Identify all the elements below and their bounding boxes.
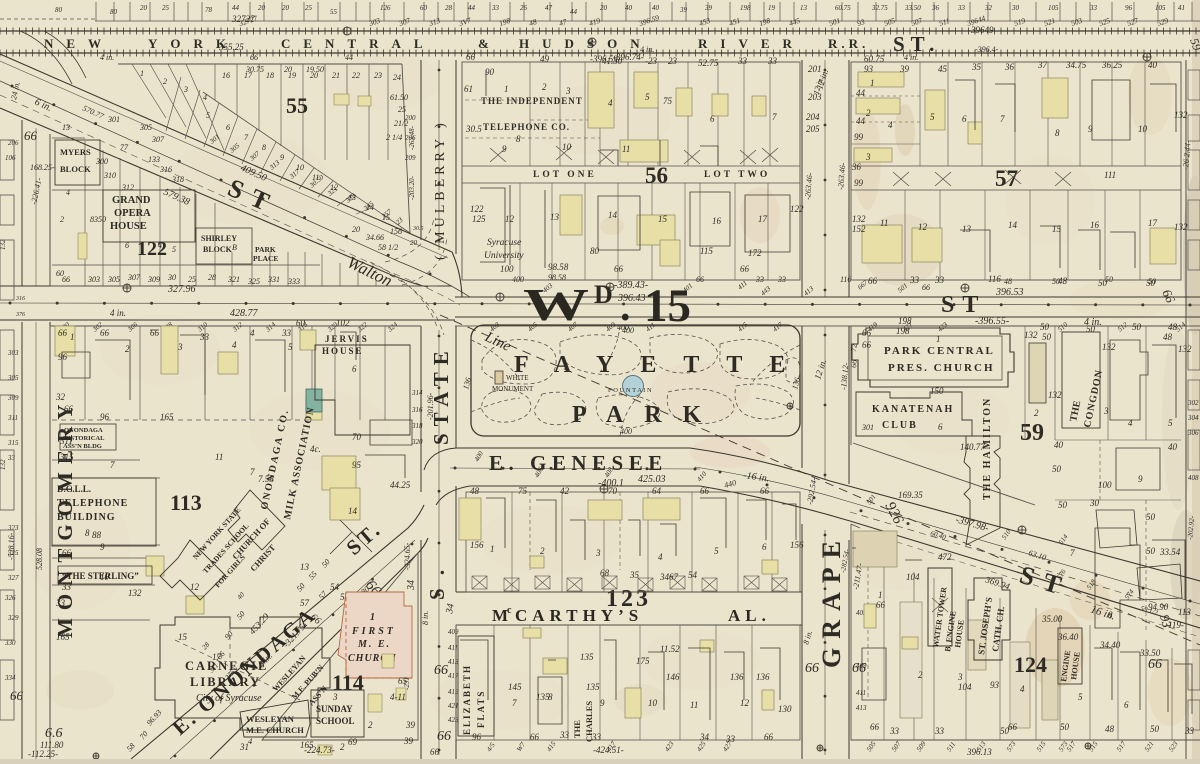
svg-text:59: 59 bbox=[1020, 420, 1044, 446]
svg-text:35: 35 bbox=[971, 62, 982, 72]
svg-text:408: 408 bbox=[1188, 474, 1199, 482]
svg-text:52.75: 52.75 bbox=[698, 58, 719, 68]
svg-text:8 in.: 8 in. bbox=[421, 611, 430, 625]
svg-text:CENTRAL: CENTRAL bbox=[281, 36, 436, 51]
svg-text:WHITE: WHITE bbox=[506, 374, 529, 382]
svg-text:7: 7 bbox=[1070, 548, 1075, 558]
svg-text:126: 126 bbox=[380, 4, 391, 12]
svg-text:6: 6 bbox=[762, 542, 767, 552]
svg-text:20: 20 bbox=[258, 4, 266, 12]
svg-text:36: 36 bbox=[931, 4, 940, 12]
svg-text:LOT TWO: LOT TWO bbox=[704, 170, 770, 180]
svg-text:18: 18 bbox=[266, 71, 274, 80]
svg-text:5: 5 bbox=[206, 111, 210, 120]
svg-text:318: 318 bbox=[411, 422, 423, 430]
svg-text:-396.4-: -396.4- bbox=[975, 45, 999, 54]
svg-text:4c.: 4c. bbox=[310, 444, 321, 454]
svg-text:13: 13 bbox=[300, 562, 310, 572]
svg-text:4: 4 bbox=[66, 188, 70, 197]
svg-text:66: 66 bbox=[530, 732, 540, 742]
svg-text:5: 5 bbox=[1168, 418, 1173, 428]
svg-text:13: 13 bbox=[800, 4, 808, 12]
svg-text:333: 333 bbox=[287, 277, 300, 286]
svg-text:30: 30 bbox=[1011, 4, 1020, 12]
svg-text:3: 3 bbox=[332, 692, 338, 702]
svg-text:32727: 32727 bbox=[231, 14, 255, 24]
svg-text:80: 80 bbox=[55, 6, 63, 14]
svg-text:61: 61 bbox=[464, 84, 473, 94]
svg-text:11: 11 bbox=[215, 452, 223, 462]
svg-text:312: 312 bbox=[121, 183, 134, 192]
svg-text:60: 60 bbox=[296, 318, 306, 328]
svg-text:4 in.: 4 in. bbox=[904, 53, 918, 62]
svg-text:PRES. CHURCH: PRES. CHURCH bbox=[888, 362, 995, 374]
svg-text:96: 96 bbox=[472, 732, 482, 742]
svg-text:132: 132 bbox=[1102, 342, 1116, 352]
svg-text:4: 4 bbox=[232, 340, 237, 350]
svg-text:3: 3 bbox=[183, 85, 188, 94]
svg-text:-39649: -39649 bbox=[968, 25, 994, 35]
svg-text:135: 135 bbox=[536, 692, 550, 702]
svg-text:39: 39 bbox=[899, 64, 910, 74]
svg-text:1: 1 bbox=[370, 612, 375, 623]
svg-text:FAYETTE: FAYETTE bbox=[514, 352, 812, 378]
svg-text:75: 75 bbox=[663, 96, 673, 106]
svg-text:9: 9 bbox=[600, 698, 605, 708]
svg-text:33: 33 bbox=[909, 275, 920, 285]
svg-text:University: University bbox=[484, 251, 524, 261]
svg-text:36.40: 36.40 bbox=[1057, 632, 1079, 642]
svg-text:B: B bbox=[232, 243, 237, 252]
svg-text:136: 136 bbox=[730, 672, 744, 682]
svg-text:135: 135 bbox=[586, 682, 600, 692]
svg-text:3: 3 bbox=[957, 672, 963, 682]
svg-text:11: 11 bbox=[622, 144, 630, 154]
svg-text:FLATS: FLATS bbox=[476, 690, 486, 728]
svg-text:205: 205 bbox=[806, 124, 820, 134]
svg-text:14: 14 bbox=[608, 210, 618, 220]
svg-text:21: 21 bbox=[332, 71, 340, 80]
svg-text:156: 156 bbox=[470, 540, 484, 550]
svg-text:132: 132 bbox=[1174, 222, 1188, 232]
svg-text:10: 10 bbox=[562, 142, 572, 152]
svg-text:3: 3 bbox=[565, 86, 571, 96]
svg-text:M.E. CHURCH: M.E. CHURCH bbox=[246, 725, 304, 735]
svg-text:11: 11 bbox=[880, 218, 888, 228]
svg-text:66: 66 bbox=[862, 340, 872, 350]
svg-text:20: 20 bbox=[410, 239, 418, 247]
svg-text:4 in.: 4 in. bbox=[100, 53, 114, 62]
svg-text:NEW: NEW bbox=[44, 36, 114, 51]
svg-text:SUNDAY: SUNDAY bbox=[316, 704, 353, 714]
svg-text:35: 35 bbox=[629, 570, 640, 580]
svg-text:41: 41 bbox=[1178, 4, 1185, 12]
svg-text:4: 4 bbox=[608, 98, 613, 108]
svg-text:57: 57 bbox=[300, 598, 310, 608]
svg-text:411: 411 bbox=[448, 644, 458, 652]
svg-text:75: 75 bbox=[518, 486, 528, 496]
svg-text:318: 318 bbox=[171, 175, 184, 184]
svg-text:10: 10 bbox=[1138, 124, 1148, 134]
svg-text:100: 100 bbox=[1098, 480, 1112, 490]
svg-text:8: 8 bbox=[1055, 128, 1060, 138]
svg-text:42: 42 bbox=[560, 486, 570, 496]
svg-text:5: 5 bbox=[930, 112, 935, 122]
svg-text:9: 9 bbox=[280, 153, 284, 162]
svg-text:301: 301 bbox=[861, 423, 874, 432]
svg-text:132: 132 bbox=[1024, 330, 1038, 340]
svg-text:421: 421 bbox=[448, 702, 459, 710]
svg-text:33: 33 bbox=[61, 582, 72, 592]
svg-text:77: 77 bbox=[120, 143, 129, 152]
svg-text:44: 44 bbox=[468, 4, 476, 12]
svg-text:44.25: 44.25 bbox=[390, 480, 411, 490]
svg-text:321: 321 bbox=[227, 275, 240, 284]
svg-text:KANATENAH: KANATENAH bbox=[872, 404, 954, 415]
svg-text:7: 7 bbox=[250, 467, 255, 477]
svg-text:66: 66 bbox=[250, 53, 258, 62]
svg-text:48: 48 bbox=[1168, 322, 1178, 332]
svg-text:33: 33 bbox=[1184, 726, 1195, 736]
svg-text:25: 25 bbox=[188, 275, 196, 284]
svg-text:28: 28 bbox=[445, 4, 453, 12]
svg-text:409: 409 bbox=[448, 628, 459, 636]
svg-text:16: 16 bbox=[712, 216, 722, 226]
svg-text:PARK: PARK bbox=[255, 245, 276, 254]
svg-text:PLACE: PLACE bbox=[253, 254, 278, 263]
svg-text:48: 48 bbox=[1058, 276, 1068, 286]
svg-text:331: 331 bbox=[267, 275, 280, 284]
svg-text:39: 39 bbox=[679, 6, 688, 14]
svg-text:9: 9 bbox=[1138, 474, 1143, 484]
svg-text:54: 54 bbox=[330, 582, 340, 592]
svg-text:48: 48 bbox=[1004, 277, 1012, 286]
svg-text:132: 132 bbox=[128, 588, 142, 598]
svg-text:355.25: 355.25 bbox=[218, 42, 244, 52]
svg-text:47: 47 bbox=[545, 4, 553, 12]
svg-text:310: 310 bbox=[103, 171, 116, 180]
svg-text:168.25-: 168.25- bbox=[30, 163, 55, 172]
svg-text:156: 156 bbox=[390, 227, 402, 236]
svg-text:327: 327 bbox=[7, 574, 19, 582]
svg-text:-112.25-: -112.25- bbox=[28, 749, 58, 759]
svg-text:39: 39 bbox=[704, 4, 713, 12]
svg-text:39: 39 bbox=[405, 720, 416, 730]
svg-text:165: 165 bbox=[160, 412, 174, 422]
svg-text:E. GENESEE: E. GENESEE bbox=[489, 451, 668, 475]
svg-text:417: 417 bbox=[448, 672, 459, 680]
svg-text:90: 90 bbox=[485, 67, 495, 77]
svg-text:25: 25 bbox=[305, 4, 313, 12]
svg-text:34.75: 34.75 bbox=[1065, 60, 1087, 70]
svg-text:145: 145 bbox=[508, 682, 522, 692]
svg-text:316: 316 bbox=[15, 296, 25, 302]
svg-text:66: 66 bbox=[437, 729, 451, 744]
svg-text:311: 311 bbox=[59, 436, 73, 446]
svg-text:25: 25 bbox=[398, 105, 406, 114]
svg-text:316: 316 bbox=[159, 165, 172, 174]
svg-text:4 in.: 4 in. bbox=[110, 308, 126, 318]
svg-text:130: 130 bbox=[778, 704, 792, 714]
svg-text:11.52: 11.52 bbox=[660, 644, 680, 654]
svg-text:66: 66 bbox=[434, 663, 448, 678]
svg-text:GRAND: GRAND bbox=[112, 195, 151, 206]
svg-text:33.50: 33.50 bbox=[1139, 648, 1161, 658]
svg-text:68: 68 bbox=[600, 568, 610, 578]
svg-text:-396.55-: -396.55- bbox=[975, 316, 1009, 327]
svg-text:M: M bbox=[492, 606, 508, 625]
svg-text:66: 66 bbox=[64, 404, 74, 414]
svg-text:7: 7 bbox=[110, 460, 115, 470]
svg-text:12: 12 bbox=[190, 582, 200, 592]
svg-text:7: 7 bbox=[512, 698, 517, 708]
svg-text:BLOCK: BLOCK bbox=[203, 245, 233, 254]
svg-text:305: 305 bbox=[7, 374, 19, 382]
svg-text:19.50: 19.50 bbox=[306, 65, 324, 74]
svg-text:323: 323 bbox=[7, 524, 19, 532]
svg-text:14: 14 bbox=[1008, 220, 1018, 230]
svg-text:72: 72 bbox=[849, 343, 859, 352]
svg-text:13: 13 bbox=[962, 224, 972, 234]
svg-text:66: 66 bbox=[849, 359, 859, 368]
svg-text:66: 66 bbox=[868, 276, 878, 286]
svg-text:96: 96 bbox=[1125, 4, 1133, 12]
svg-text:146: 146 bbox=[666, 672, 680, 682]
svg-text:3467: 3467 bbox=[659, 572, 679, 582]
svg-text:4: 4 bbox=[1128, 418, 1133, 428]
svg-text:80: 80 bbox=[590, 246, 600, 256]
svg-text:1: 1 bbox=[140, 69, 144, 78]
svg-text:8: 8 bbox=[85, 528, 90, 538]
svg-text:40: 40 bbox=[1168, 442, 1178, 452]
svg-text:44: 44 bbox=[345, 53, 353, 62]
svg-text:132: 132 bbox=[1178, 344, 1192, 354]
svg-text:40: 40 bbox=[625, 4, 633, 12]
svg-text:100: 100 bbox=[500, 264, 514, 274]
svg-text:132: 132 bbox=[0, 459, 7, 470]
svg-text:4: 4 bbox=[250, 328, 255, 338]
svg-text:104: 104 bbox=[958, 682, 972, 692]
svg-text:66: 66 bbox=[805, 661, 819, 676]
svg-text:44: 44 bbox=[570, 8, 578, 16]
svg-text:50: 50 bbox=[1058, 500, 1068, 510]
svg-text:14: 14 bbox=[348, 506, 358, 516]
svg-text:30: 30 bbox=[1089, 498, 1100, 508]
svg-text:13: 13 bbox=[550, 212, 560, 222]
svg-text:4 in.: 4 in. bbox=[640, 45, 654, 54]
svg-text:150: 150 bbox=[930, 386, 944, 396]
svg-text:6: 6 bbox=[938, 422, 943, 432]
svg-text:66: 66 bbox=[760, 486, 770, 496]
svg-text:5: 5 bbox=[288, 342, 293, 352]
svg-text:4: 4 bbox=[658, 552, 663, 562]
svg-text:15: 15 bbox=[1052, 224, 1062, 234]
svg-text:396.53: 396.53 bbox=[995, 287, 1024, 298]
svg-text:2: 2 bbox=[918, 670, 923, 680]
svg-text:66: 66 bbox=[150, 328, 160, 338]
svg-text:33: 33 bbox=[737, 56, 748, 66]
svg-text:AL.: AL. bbox=[728, 606, 771, 625]
svg-text:36.25: 36.25 bbox=[1101, 60, 1123, 70]
svg-text:55: 55 bbox=[330, 8, 338, 16]
svg-text:HUDSON: HUDSON bbox=[519, 36, 653, 51]
svg-text:303: 303 bbox=[87, 275, 100, 284]
svg-text:115: 115 bbox=[700, 246, 713, 256]
svg-text:99: 99 bbox=[854, 178, 864, 188]
svg-text:66: 66 bbox=[62, 275, 70, 284]
svg-text:50: 50 bbox=[1042, 332, 1052, 342]
svg-text:4: 4 bbox=[1020, 684, 1025, 694]
svg-text:66: 66 bbox=[876, 600, 886, 610]
svg-text:50: 50 bbox=[1086, 324, 1096, 334]
svg-text:PARK CENTRAL: PARK CENTRAL bbox=[884, 345, 995, 357]
svg-text:13: 13 bbox=[62, 123, 70, 132]
svg-text:-23: -23 bbox=[645, 56, 657, 66]
svg-text:125: 125 bbox=[472, 214, 486, 224]
svg-text:1: 1 bbox=[490, 544, 495, 554]
svg-text:TELEPHONE CO.: TELEPHONE CO. bbox=[483, 122, 570, 132]
svg-text:2: 2 bbox=[540, 546, 545, 556]
svg-text:2 1/4: 2 1/4 bbox=[386, 133, 402, 142]
svg-text:12: 12 bbox=[918, 222, 928, 232]
svg-text:66: 66 bbox=[24, 128, 38, 143]
svg-text:305: 305 bbox=[139, 123, 152, 132]
svg-text:48: 48 bbox=[1163, 332, 1173, 342]
svg-text:472: 472 bbox=[938, 552, 952, 562]
svg-text:65: 65 bbox=[398, 676, 408, 686]
svg-text:98.58: 98.58 bbox=[548, 262, 569, 272]
svg-text:17: 17 bbox=[758, 214, 768, 224]
svg-text:8: 8 bbox=[1108, 610, 1113, 620]
svg-text:2: 2 bbox=[340, 742, 345, 752]
svg-text:6: 6 bbox=[352, 364, 357, 374]
svg-text:HOUSE: HOUSE bbox=[110, 221, 147, 232]
svg-text:7.58: 7.58 bbox=[258, 474, 274, 484]
svg-text:320: 320 bbox=[411, 438, 423, 446]
svg-text:172: 172 bbox=[748, 248, 762, 258]
svg-text:17: 17 bbox=[1148, 218, 1158, 228]
svg-text:400: 400 bbox=[512, 275, 524, 284]
svg-text:41.50: 41.50 bbox=[602, 56, 623, 66]
svg-text:80: 80 bbox=[110, 8, 118, 16]
svg-text:10: 10 bbox=[100, 572, 110, 582]
svg-text:124: 124 bbox=[1014, 652, 1047, 677]
svg-text:304: 304 bbox=[1187, 414, 1199, 422]
svg-text:F O U N T A I N: F O U N T A I N bbox=[608, 387, 652, 394]
svg-text:105: 105 bbox=[1048, 4, 1059, 12]
svg-text:MYERS: MYERS bbox=[60, 147, 91, 157]
svg-text:116: 116 bbox=[840, 275, 851, 284]
svg-text:45: 45 bbox=[938, 64, 948, 74]
svg-text:33: 33 bbox=[934, 726, 945, 736]
svg-text:8: 8 bbox=[516, 134, 521, 144]
svg-text:50: 50 bbox=[1150, 724, 1160, 734]
svg-text:RIVER: RIVER bbox=[698, 36, 805, 51]
svg-text:6.6: 6.6 bbox=[45, 726, 63, 741]
svg-text:44: 44 bbox=[856, 116, 866, 126]
svg-text:3: 3 bbox=[177, 342, 183, 352]
svg-text:5: 5 bbox=[645, 92, 650, 102]
svg-text:34: 34 bbox=[699, 732, 710, 742]
svg-text:34.66: 34.66 bbox=[365, 233, 384, 242]
svg-text:305: 305 bbox=[107, 275, 120, 284]
svg-text:40: 40 bbox=[1148, 60, 1158, 70]
svg-text:33: 33 bbox=[934, 275, 945, 285]
svg-text:9: 9 bbox=[100, 542, 105, 552]
svg-text:1: 1 bbox=[504, 84, 509, 94]
svg-text:16: 16 bbox=[222, 71, 230, 80]
svg-text:66: 66 bbox=[466, 52, 476, 62]
svg-text:17: 17 bbox=[212, 652, 222, 662]
svg-text:50: 50 bbox=[1040, 322, 1050, 332]
svg-text:50: 50 bbox=[1098, 278, 1108, 288]
svg-text:93: 93 bbox=[990, 680, 1000, 690]
svg-text:66: 66 bbox=[922, 283, 930, 292]
svg-text:413: 413 bbox=[448, 658, 459, 666]
svg-text:122: 122 bbox=[470, 204, 484, 214]
svg-text:30.75: 30.75 bbox=[245, 65, 264, 74]
svg-text:TELEPHONE: TELEPHONE bbox=[57, 498, 128, 509]
svg-text:9: 9 bbox=[1088, 124, 1093, 134]
svg-text:2: 2 bbox=[866, 108, 871, 118]
svg-text:140.77: 140.77 bbox=[960, 442, 985, 452]
svg-text:198: 198 bbox=[898, 316, 912, 326]
svg-text:307: 307 bbox=[127, 273, 141, 282]
svg-text:376: 376 bbox=[15, 312, 25, 318]
svg-text:303: 303 bbox=[7, 349, 19, 357]
svg-text:9: 9 bbox=[502, 144, 507, 154]
svg-text:21/2: 21/2 bbox=[394, 119, 408, 128]
svg-text:23: 23 bbox=[668, 56, 678, 66]
svg-text:32: 32 bbox=[984, 4, 993, 12]
svg-text:400: 400 bbox=[622, 326, 634, 335]
svg-text:S .: S . bbox=[425, 566, 449, 600]
svg-text:23: 23 bbox=[374, 71, 382, 80]
svg-text:66: 66 bbox=[58, 328, 68, 338]
svg-text:60.75: 60.75 bbox=[864, 54, 885, 64]
svg-text:-528.16-: -528.16- bbox=[7, 532, 16, 560]
svg-text:BLOCK: BLOCK bbox=[60, 164, 91, 174]
svg-text:40: 40 bbox=[652, 4, 660, 12]
svg-text:309: 309 bbox=[147, 275, 160, 284]
svg-text:2: 2 bbox=[1034, 408, 1039, 418]
svg-text:36: 36 bbox=[1004, 62, 1015, 72]
svg-text:48: 48 bbox=[470, 486, 480, 496]
svg-text:-201.96-: -201.96- bbox=[426, 392, 435, 420]
svg-text:528.08: 528.08 bbox=[35, 548, 44, 570]
svg-text:-263.48-: -263.48- bbox=[408, 125, 416, 150]
svg-text:66: 66 bbox=[700, 486, 710, 496]
svg-text:3: 3 bbox=[1103, 406, 1109, 416]
svg-text:307: 307 bbox=[151, 135, 165, 144]
svg-text:132: 132 bbox=[1174, 110, 1188, 120]
svg-text:33: 33 bbox=[591, 732, 602, 742]
svg-text:314: 314 bbox=[411, 389, 423, 397]
svg-text:34: 34 bbox=[406, 580, 417, 591]
svg-text:400: 400 bbox=[620, 427, 632, 436]
svg-text:66: 66 bbox=[862, 328, 872, 338]
svg-text:95: 95 bbox=[352, 460, 362, 470]
svg-text:111: 111 bbox=[1104, 170, 1116, 180]
svg-text:122: 122 bbox=[137, 238, 167, 260]
svg-text:4: 4 bbox=[158, 241, 162, 250]
svg-text:PARK: PARK bbox=[572, 402, 722, 428]
svg-text:33: 33 bbox=[1089, 4, 1098, 12]
svg-text:34.40: 34.40 bbox=[1099, 640, 1121, 650]
svg-text:165: 165 bbox=[56, 632, 70, 642]
svg-text:FIRST: FIRST bbox=[351, 626, 396, 637]
svg-text:419: 419 bbox=[448, 688, 459, 696]
